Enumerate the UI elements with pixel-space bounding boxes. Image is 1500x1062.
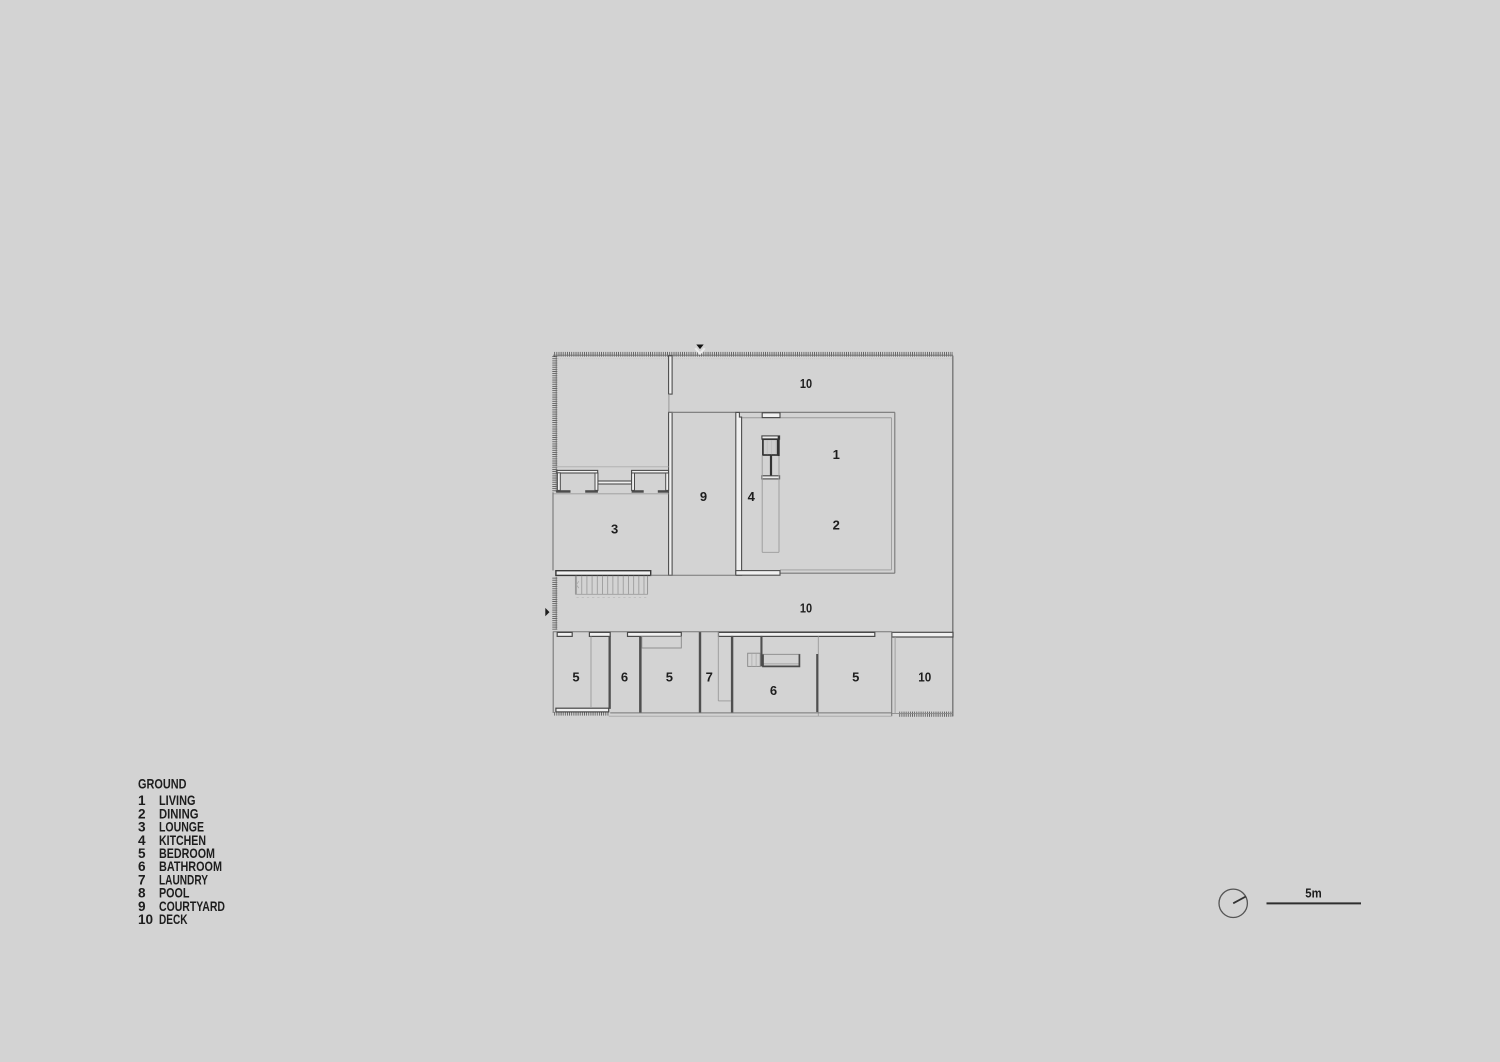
svg-text:7: 7: [706, 670, 713, 685]
svg-text:DECK: DECK: [159, 912, 188, 927]
svg-text:3: 3: [611, 522, 618, 537]
svg-text:4: 4: [748, 489, 756, 504]
svg-text:10: 10: [918, 670, 931, 685]
svg-text:10: 10: [800, 601, 812, 616]
svg-text:10: 10: [800, 376, 812, 391]
svg-text:10: 10: [138, 912, 153, 927]
svg-text:5: 5: [666, 670, 673, 685]
svg-text:9: 9: [700, 489, 707, 504]
svg-text:1: 1: [833, 447, 840, 462]
svg-text:5: 5: [572, 670, 579, 685]
svg-text:5m: 5m: [1305, 885, 1321, 900]
svg-text:GROUND: GROUND: [138, 776, 187, 791]
svg-text:6: 6: [621, 670, 628, 685]
svg-text:6: 6: [770, 683, 777, 698]
svg-text:5: 5: [852, 670, 859, 685]
svg-text:2: 2: [833, 518, 840, 533]
